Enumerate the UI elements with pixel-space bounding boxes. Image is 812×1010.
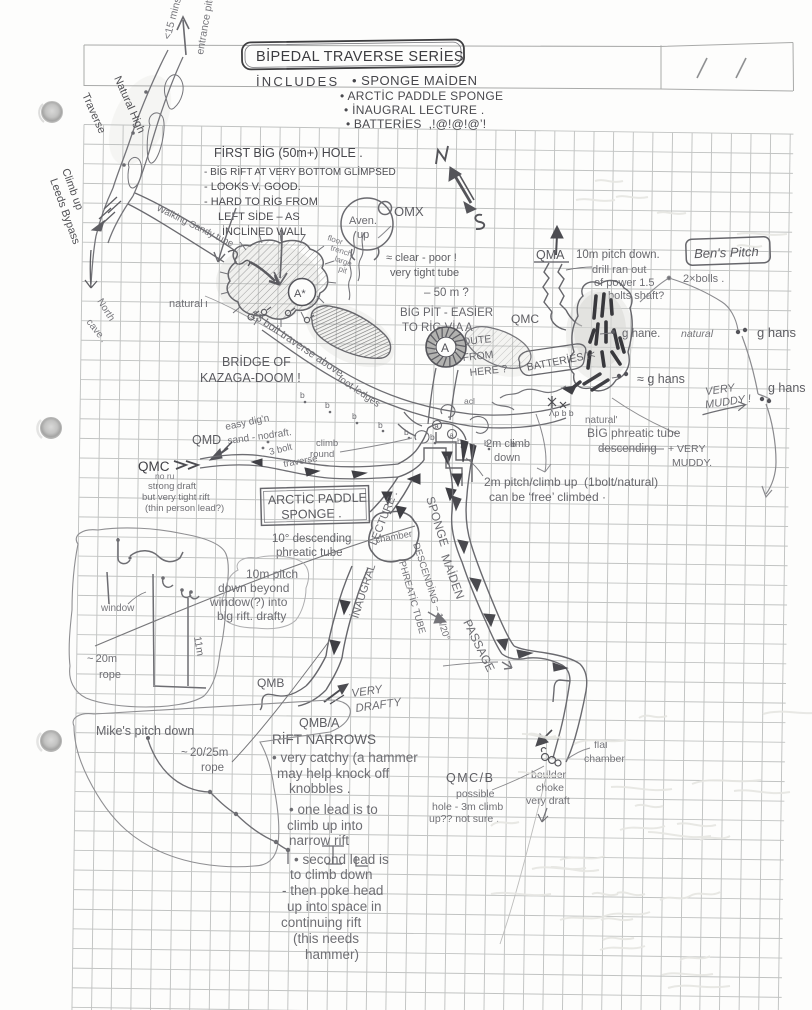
- svg-text:hammer): hammer): [305, 947, 359, 962]
- svg-text:QMB: QMB: [257, 676, 284, 690]
- svg-text:up?? not sure .: up?? not sure .: [429, 813, 499, 825]
- svg-text:2×bolls .: 2×bolls .: [683, 273, 724, 285]
- svg-text:SPONGE .: SPONGE .: [281, 506, 342, 522]
- svg-text:QMC/B: QMC/B: [446, 771, 494, 785]
- svg-text:down beyond: down beyond: [218, 581, 289, 595]
- svg-text:window: window: [100, 603, 135, 614]
- svg-text:QMD: QMD: [192, 433, 221, 447]
- svg-text:İNCLİNED WALL: İNCLİNED WALL: [222, 225, 306, 238]
- svg-text:very tight tube: very tight tube: [390, 267, 459, 279]
- svg-text:big rift. drafty: big rift. drafty: [217, 609, 286, 623]
- svg-text:b: b: [352, 411, 357, 421]
- svg-text:BRİDGE OF: BRİDGE OF: [222, 355, 291, 369]
- svg-text:• very catchy (a hammer: • very catchy (a hammer: [272, 750, 418, 765]
- svg-text:chamber: chamber: [584, 753, 625, 765]
- svg-text:MUDDY.: MUDDY.: [672, 457, 712, 469]
- svg-text:ОMX: ОMX: [394, 204, 424, 219]
- svg-text:rope: rope: [99, 669, 121, 681]
- svg-text:LEFT SİDE – AS: LEFT SİDE – AS: [218, 210, 300, 223]
- svg-text:climb: climb: [316, 438, 338, 449]
- svg-text:choke: choke: [536, 782, 564, 794]
- svg-text:can be ‘free’ climbed ·: can be ‘free’ climbed ·: [489, 490, 606, 504]
- svg-text:QMB/A: QMB/A: [299, 716, 340, 730]
- svg-text:bolts shaft?: bolts shaft?: [608, 290, 664, 302]
- svg-text:~ 20/25m: ~ 20/25m: [181, 747, 228, 759]
- svg-text:hole - 3m climb: hole - 3m climb: [432, 801, 503, 813]
- svg-text:g hans: g hans: [757, 325, 797, 340]
- svg-text:10° descending: 10° descending: [272, 533, 351, 545]
- svg-text:acl: acl: [464, 396, 475, 406]
- svg-text:rope: rope: [201, 762, 224, 774]
- svg-text:BİG PİT - EASİER: BİG PİT - EASİER: [400, 306, 493, 319]
- svg-text:possible: possible: [456, 788, 495, 800]
- svg-text:Aven.: Aven.: [349, 215, 377, 227]
- svg-text:2m pitch/climb up (1bolt/natu: 2m pitch/climb up (1bolt/natural): [484, 475, 658, 489]
- svg-text:QMC: QMC: [511, 312, 539, 326]
- svg-text:BİPEDAL TRAVERSE SERİES: BİPEDAL TRAVERSE SERİES: [256, 47, 464, 65]
- svg-text:2m climb: 2m climb: [486, 438, 530, 450]
- svg-text:10m pitch down.: 10m pitch down.: [576, 249, 660, 261]
- svg-text:• İNAUGRAL LECTURE .: • İNAUGRAL LECTURE .: [344, 103, 484, 117]
- svg-text:may help knock off: may help knock off: [277, 766, 390, 781]
- svg-text:A: A: [441, 341, 449, 355]
- svg-text:• BATTERİES ,!@!@!@’!: • BATTERİES ,!@!@!@’!: [346, 117, 486, 131]
- svg-text:- LOOKS V. GOOD.: - LOOKS V. GOOD.: [204, 181, 301, 193]
- svg-text:Mike's pitch down: Mike's pitch down: [96, 724, 194, 738]
- svg-text:FİRST BİG (50m+) HOLE .: FİRST BİG (50m+) HOLE .: [214, 146, 363, 160]
- svg-text:– 50 m ?: – 50 m ?: [424, 287, 469, 299]
- svg-text:no ru: no ru: [155, 471, 175, 481]
- svg-text:ARCTİC PADDLE: ARCTİC PADDLE: [268, 491, 367, 508]
- svg-text:climb up into: climb up into: [287, 818, 363, 833]
- svg-text:window(?) into: window(?) into: [209, 595, 288, 609]
- svg-text:b: b: [325, 400, 330, 410]
- svg-text:b: b: [378, 420, 383, 430]
- svg-text:knobbles .: knobbles .: [289, 781, 351, 796]
- svg-text:• ARCTİC PADDLE SPONGE: • ARCTİC PADDLE SPONGE: [340, 89, 503, 103]
- svg-text:continuing rift: continuing rift: [281, 915, 362, 930]
- svg-text:b: b: [300, 390, 305, 400]
- svg-text:round: round: [310, 449, 334, 460]
- svg-text:b: b: [430, 432, 435, 442]
- svg-text:- then poke head: - then poke head: [282, 883, 383, 898]
- svg-text:KAZAGA-DOOM !: KAZAGA-DOOM !: [200, 371, 301, 385]
- svg-text:strong draft: strong draft: [148, 481, 196, 492]
- svg-text:g hans: g hans: [768, 381, 806, 395]
- svg-text:- HARD TO RİG FROM: - HARD TO RİG FROM: [204, 195, 318, 208]
- svg-text:≈ g hans: ≈ g hans: [637, 372, 685, 386]
- svg-text:10m pitch: 10m pitch: [246, 567, 298, 581]
- svg-text:(this needs: (this needs: [293, 931, 359, 946]
- svg-text:natural: natural: [681, 328, 714, 340]
- svg-text:+ VERY: + VERY: [668, 443, 705, 455]
- svg-text:(thin person lead?): (thin person lead?): [145, 503, 224, 514]
- svg-text:drill ran out: drill ran out: [592, 264, 646, 276]
- svg-text:- BİG RİFT AT VERY BOTTOM GLİM: - BİG RİFT AT VERY BOTTOM GLİMPSED: [204, 165, 396, 178]
- svg-text:QMA: QMA: [536, 248, 565, 262]
- svg-text:down: down: [494, 452, 520, 464]
- svg-text:natural ı: natural ı: [169, 298, 208, 310]
- svg-text:İNCLUDES: İNCLUDES: [256, 74, 339, 89]
- svg-text:BİG phreatic tube: BİG phreatic tube: [587, 426, 681, 440]
- svg-text:RİFT NARROWS: RİFT NARROWS: [272, 732, 376, 747]
- svg-text:but very tight rift: but very tight rift: [142, 492, 210, 503]
- svg-text:• one lead is to: • one lead is to: [289, 802, 378, 817]
- svg-text:g hane.: g hane.: [622, 328, 660, 340]
- svg-text:Λp b b: Λp b b: [549, 408, 574, 418]
- svg-text:natural': natural': [585, 415, 618, 426]
- svg-text:to climb down: to climb down: [290, 867, 373, 882]
- svg-text:A*: A*: [294, 288, 306, 300]
- svg-text:up into space in: up into space in: [287, 899, 382, 914]
- svg-text:• second lead is: • second lead is: [294, 852, 389, 867]
- svg-text:~ 20m: ~ 20m: [87, 653, 117, 665]
- svg-text:very draft: very draft: [526, 795, 570, 807]
- svg-text:• SPONGE MAİDEN: • SPONGE MAİDEN: [352, 73, 477, 88]
- svg-text:≈ clear - poor !: ≈ clear - poor !: [386, 252, 457, 264]
